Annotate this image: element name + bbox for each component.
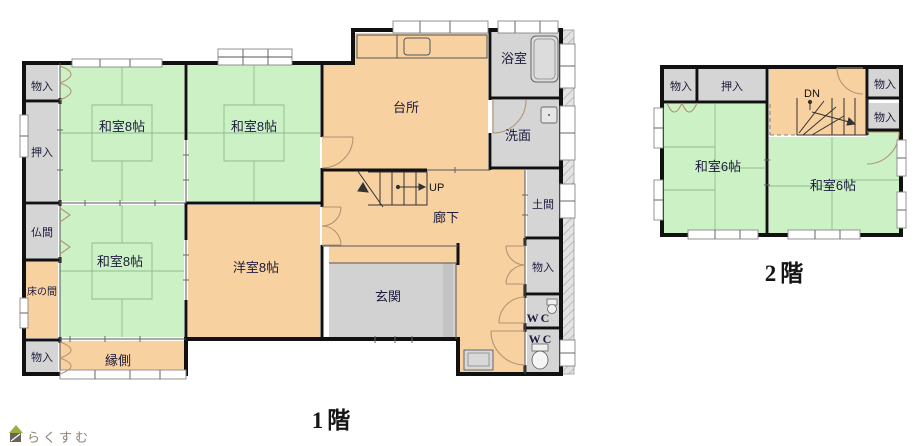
label-engawa: 縁側 [105, 353, 131, 368]
label-washitsu-c: 和室8帖 [97, 254, 143, 269]
label-tokonoma: 床の間 [27, 285, 57, 298]
label-doma: 土間 [532, 198, 554, 211]
label-genkan: 玄関 [375, 289, 401, 304]
label2f-dn: DN [804, 88, 820, 100]
label-senmen: 洗面 [505, 128, 531, 143]
floor2-title: 2階 [765, 261, 808, 286]
label2f-washitsu-r: 和室6帖 [810, 178, 856, 193]
label-monoire-tl: 物入 [31, 79, 53, 93]
label-washitsu-b: 和室8帖 [231, 119, 277, 134]
genkan-step-shade [443, 263, 453, 339]
floor2-plan: 物入 押入 DN 物入 物入 和室6帖 和室6帖 2階 [654, 67, 906, 286]
bathtub-icon [531, 36, 558, 82]
label2f-monoire-tr: 物入 [874, 77, 896, 91]
label2f-monoire-r: 物入 [874, 110, 896, 124]
room2f-stair-hall [769, 69, 867, 135]
label2f-oshiire: 押入 [721, 79, 743, 93]
floor1-title: 1階 [312, 408, 355, 433]
label-wc-upper: WC [527, 311, 552, 325]
label2f-washitsu-l: 和室6帖 [695, 159, 741, 174]
label-butsuma: 仏間 [31, 226, 53, 239]
label-monoire-bl: 物入 [31, 350, 53, 364]
label2f-monoire-tl: 物入 [670, 79, 692, 93]
label-monoire-r: 物入 [532, 260, 554, 274]
label-up: UP [429, 182, 444, 194]
washbasin-drain [548, 114, 550, 116]
logo: らくすむ [9, 425, 91, 445]
label-oshiire: 押入 [31, 145, 53, 159]
logo-text: らくすむ [27, 430, 91, 445]
label-wc-lower: WC [529, 332, 554, 346]
floorplan-page: 物入 押入 仏間 床の間 物入 和室8帖 和室8帖 和室8帖 洋室8帖 縁側 台… [0, 0, 921, 446]
label-yoshitsu: 洋室8帖 [233, 260, 279, 275]
room-tokonoma [26, 261, 58, 338]
label-yokushitsu: 浴室 [501, 51, 527, 66]
label-rouka: 廊下 [433, 210, 459, 225]
logo-house-roof-icon [9, 425, 23, 433]
floor1-plan: 物入 押入 仏間 床の間 物入 和室8帖 和室8帖 和室8帖 洋室8帖 縁側 台… [20, 21, 575, 433]
label-daidokoro: 台所 [393, 100, 419, 115]
label-washitsu-a: 和室8帖 [99, 119, 145, 134]
floorplan-drawing: 物入 押入 仏間 床の間 物入 和室8帖 和室8帖 和室8帖 洋室8帖 縁側 台… [0, 0, 921, 446]
toilet-icon [532, 351, 548, 369]
